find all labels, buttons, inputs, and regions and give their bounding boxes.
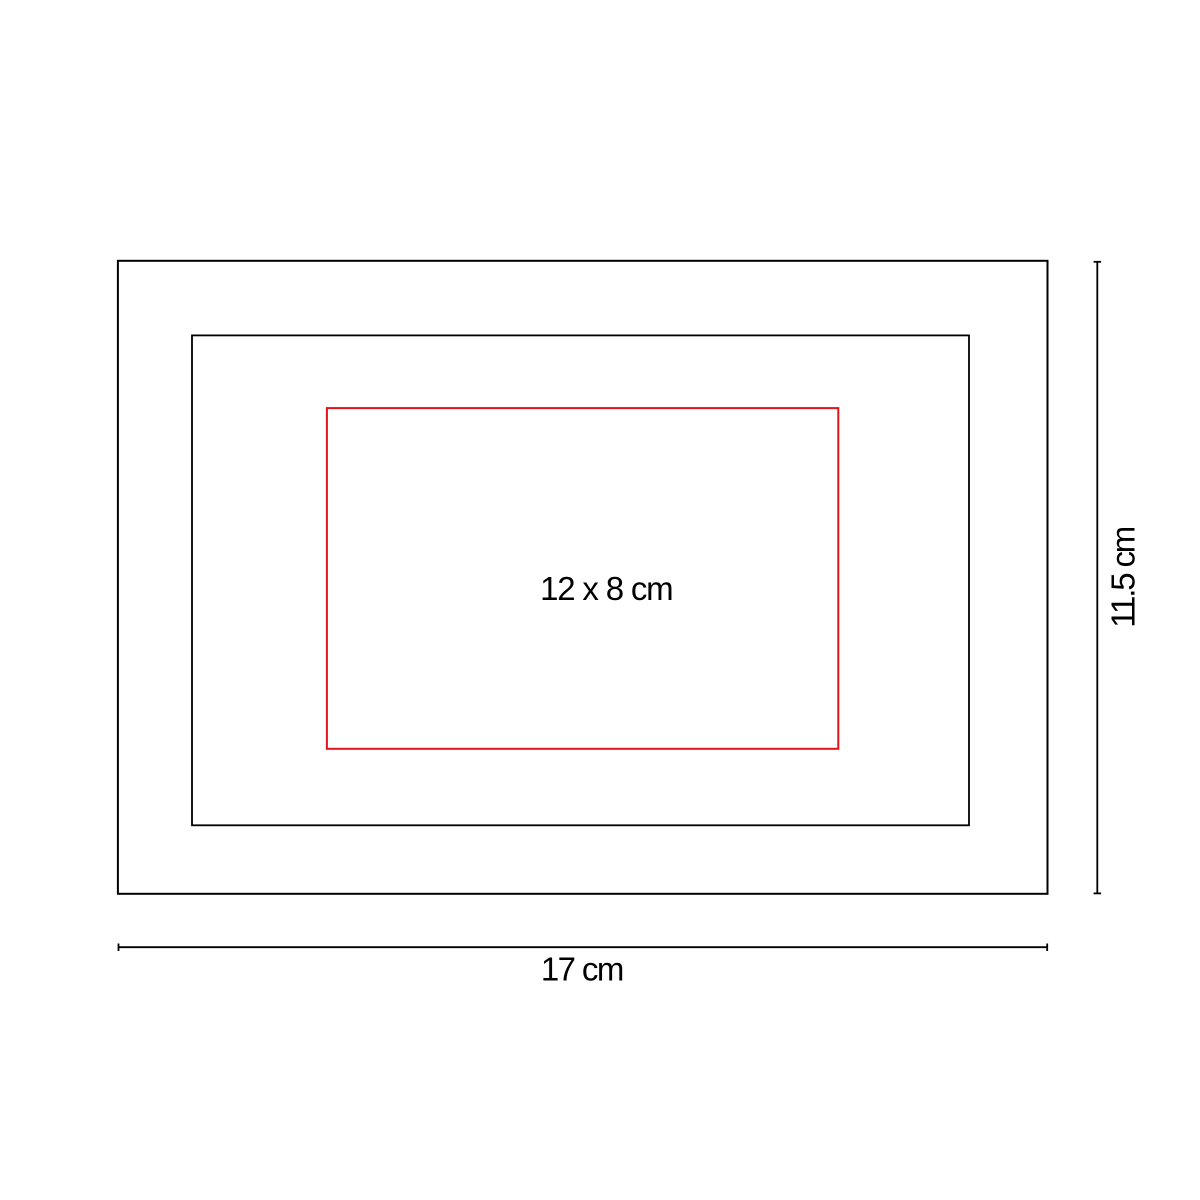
svg-text:17 cm: 17 cm (541, 950, 623, 987)
svg-text:11.5 cm: 11.5 cm (1105, 527, 1142, 628)
svg-text:12 x 8 cm: 12 x 8 cm (540, 570, 672, 607)
